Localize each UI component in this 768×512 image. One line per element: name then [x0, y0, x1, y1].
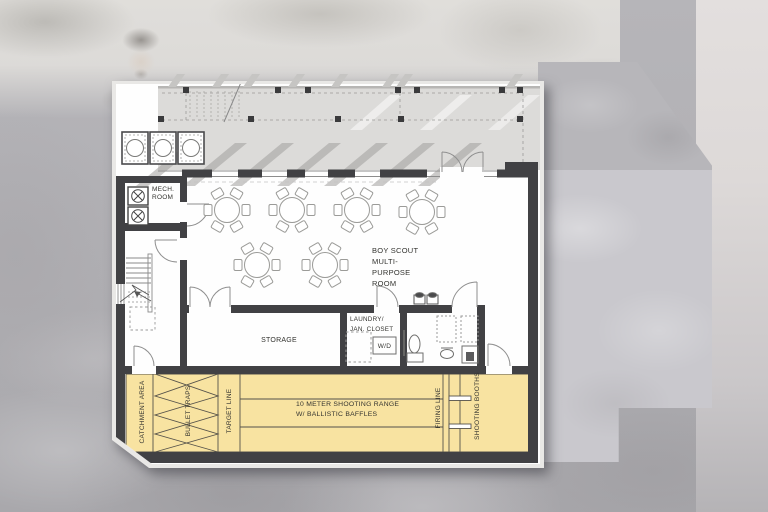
label-bsa-3: PURPOSE — [372, 268, 410, 277]
label-bsa-2: MULTI- — [372, 257, 398, 266]
drinking-fountain — [414, 293, 425, 304]
label-target-line: TARGET LINE — [226, 388, 233, 433]
label-bsa-4: ROOM — [372, 279, 396, 288]
label-range-1: 10 METER SHOOTING RANGE — [296, 401, 399, 408]
label-laundry-1: LAUNDRY/ — [350, 316, 384, 323]
drinking-fountain — [427, 293, 438, 304]
floor-plan: MECH. ROOM BOY SCOUT MULTI- PURPOSE ROOM… — [0, 0, 768, 512]
label-mech-2: ROOM — [152, 194, 173, 201]
label-shooting-booths: SHOOTING BOOTHS — [474, 372, 481, 440]
label-wd: W/D — [378, 343, 391, 350]
label-laundry-2: JAN. CLOSET — [350, 326, 393, 333]
label-firing-line: FIRING LINE — [435, 387, 442, 428]
equipment-tanks — [122, 132, 204, 164]
poster-canvas: MECH. ROOM BOY SCOUT MULTI- PURPOSE ROOM… — [0, 0, 768, 512]
label-mech-1: MECH. — [152, 186, 174, 193]
label-storage: STORAGE — [261, 337, 297, 344]
label-catchment: CATCHMENT AREA — [139, 380, 146, 443]
label-range-2: W/ BALLISTIC BAFFLES — [296, 411, 378, 418]
booth-divider — [449, 396, 471, 401]
label-bullet-traps: BULLET TRAPS — [185, 385, 192, 436]
label-bsa-1: BOY SCOUT — [372, 246, 418, 255]
booth-divider — [449, 424, 471, 429]
